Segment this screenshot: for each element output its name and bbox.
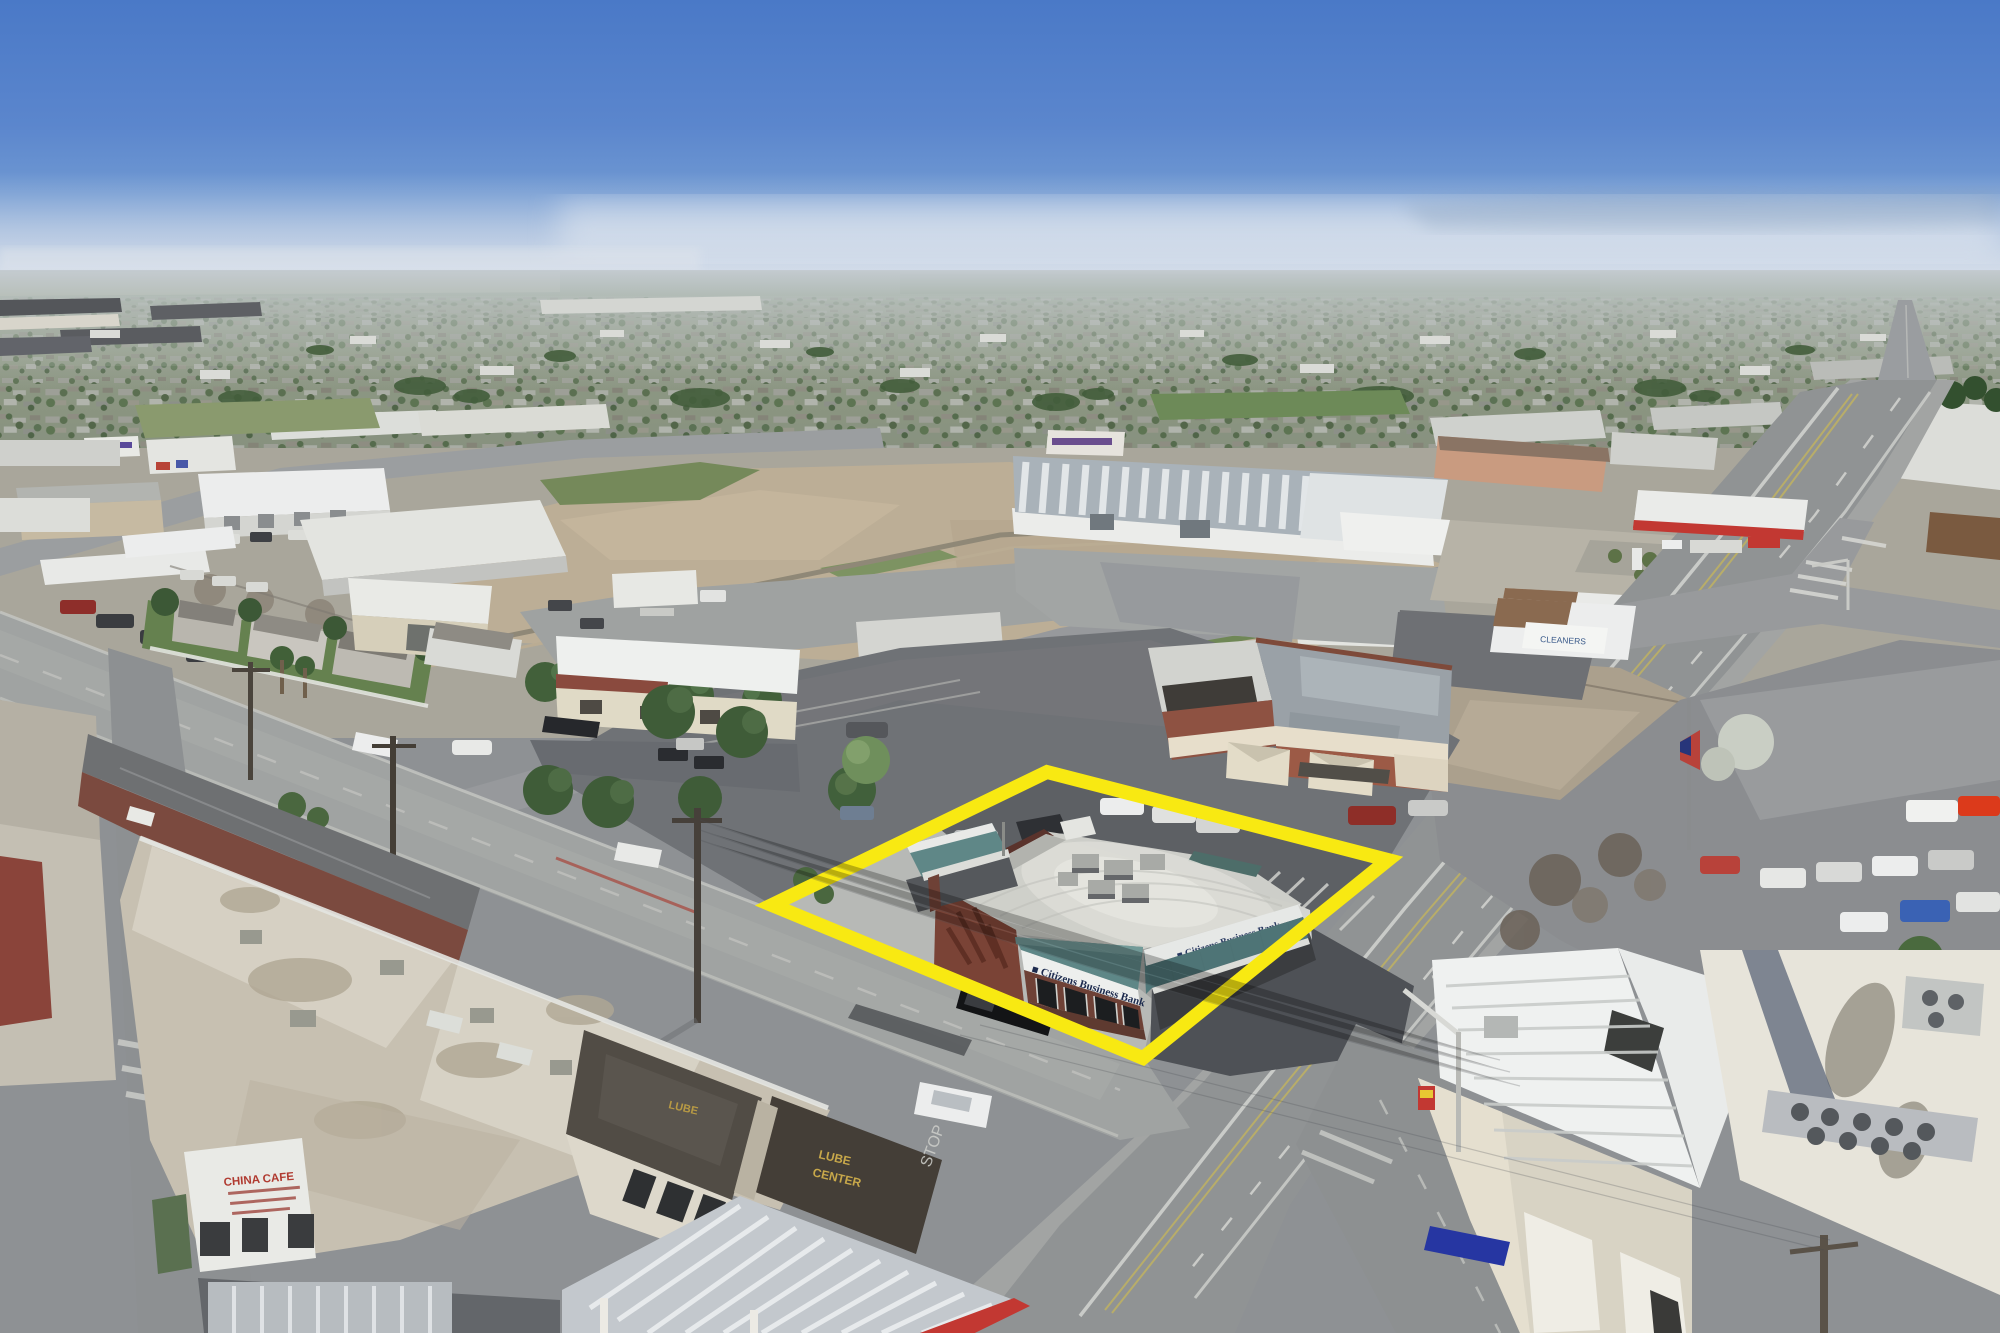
svg-text:STOP: STOP	[918, 1123, 949, 1169]
